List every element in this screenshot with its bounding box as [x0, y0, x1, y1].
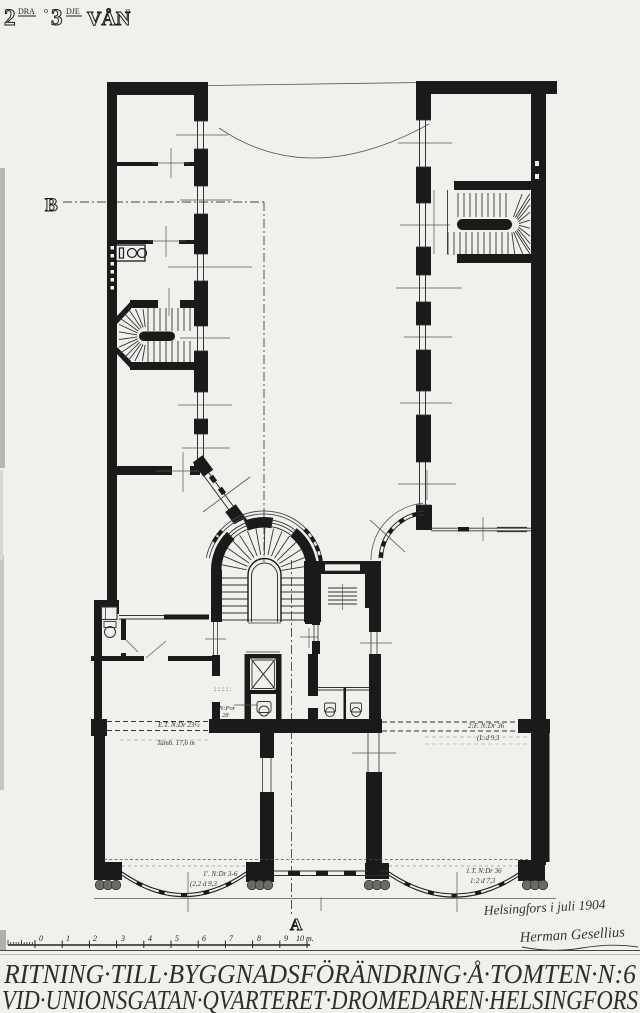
- svg-text:DRA: DRA: [18, 7, 35, 16]
- svg-text:1'. N:Dr 3-6: 1'. N:Dr 3-6: [203, 870, 238, 878]
- svg-text:2: 2: [93, 934, 97, 943]
- svg-text:o: o: [44, 6, 48, 15]
- svg-text:VÅN: VÅN: [87, 7, 131, 30]
- svg-text:DJE: DJE: [66, 7, 80, 16]
- svg-text:2:F. N:Dr 36: 2:F. N:Dr 36: [468, 722, 505, 730]
- svg-text:VID·UNIONSGATAN·QVARTERET·DROM: VID·UNIONSGATAN·QVARTERET·DROMEDAREN·HEL…: [2, 985, 638, 1013]
- svg-text:0: 0: [39, 934, 43, 943]
- svg-text:6: 6: [202, 934, 206, 943]
- svg-text:(L:d 9,3: (L:d 9,3: [477, 734, 500, 742]
- svg-text:1: 1: [66, 934, 70, 943]
- svg-text:9: 9: [284, 934, 288, 943]
- svg-text:(2,2 d 9,3: (2,2 d 9,3: [190, 880, 217, 888]
- svg-text:5: 5: [175, 934, 179, 943]
- svg-text:o: o: [126, 6, 130, 15]
- svg-text:1:2 d 7,3: 1:2 d 7,3: [470, 877, 496, 885]
- svg-text:3: 3: [51, 5, 63, 30]
- svg-text:1.T. N:Dr 36: 1.T. N:Dr 36: [466, 867, 502, 875]
- svg-text:8: 8: [257, 934, 261, 943]
- svg-text:A: A: [290, 915, 303, 934]
- svg-text:3: 3: [120, 934, 125, 943]
- svg-text:B: B: [45, 195, 58, 216]
- svg-text:28: 28: [222, 712, 229, 719]
- svg-text:2: 2: [4, 5, 16, 30]
- svg-text:4: 4: [148, 934, 152, 943]
- svg-text:10 m.: 10 m.: [296, 934, 314, 943]
- svg-text:E.T. N:Dr 23½: E.T. N:Dr 23½: [157, 721, 200, 729]
- svg-text:N:Por: N:Por: [218, 705, 236, 712]
